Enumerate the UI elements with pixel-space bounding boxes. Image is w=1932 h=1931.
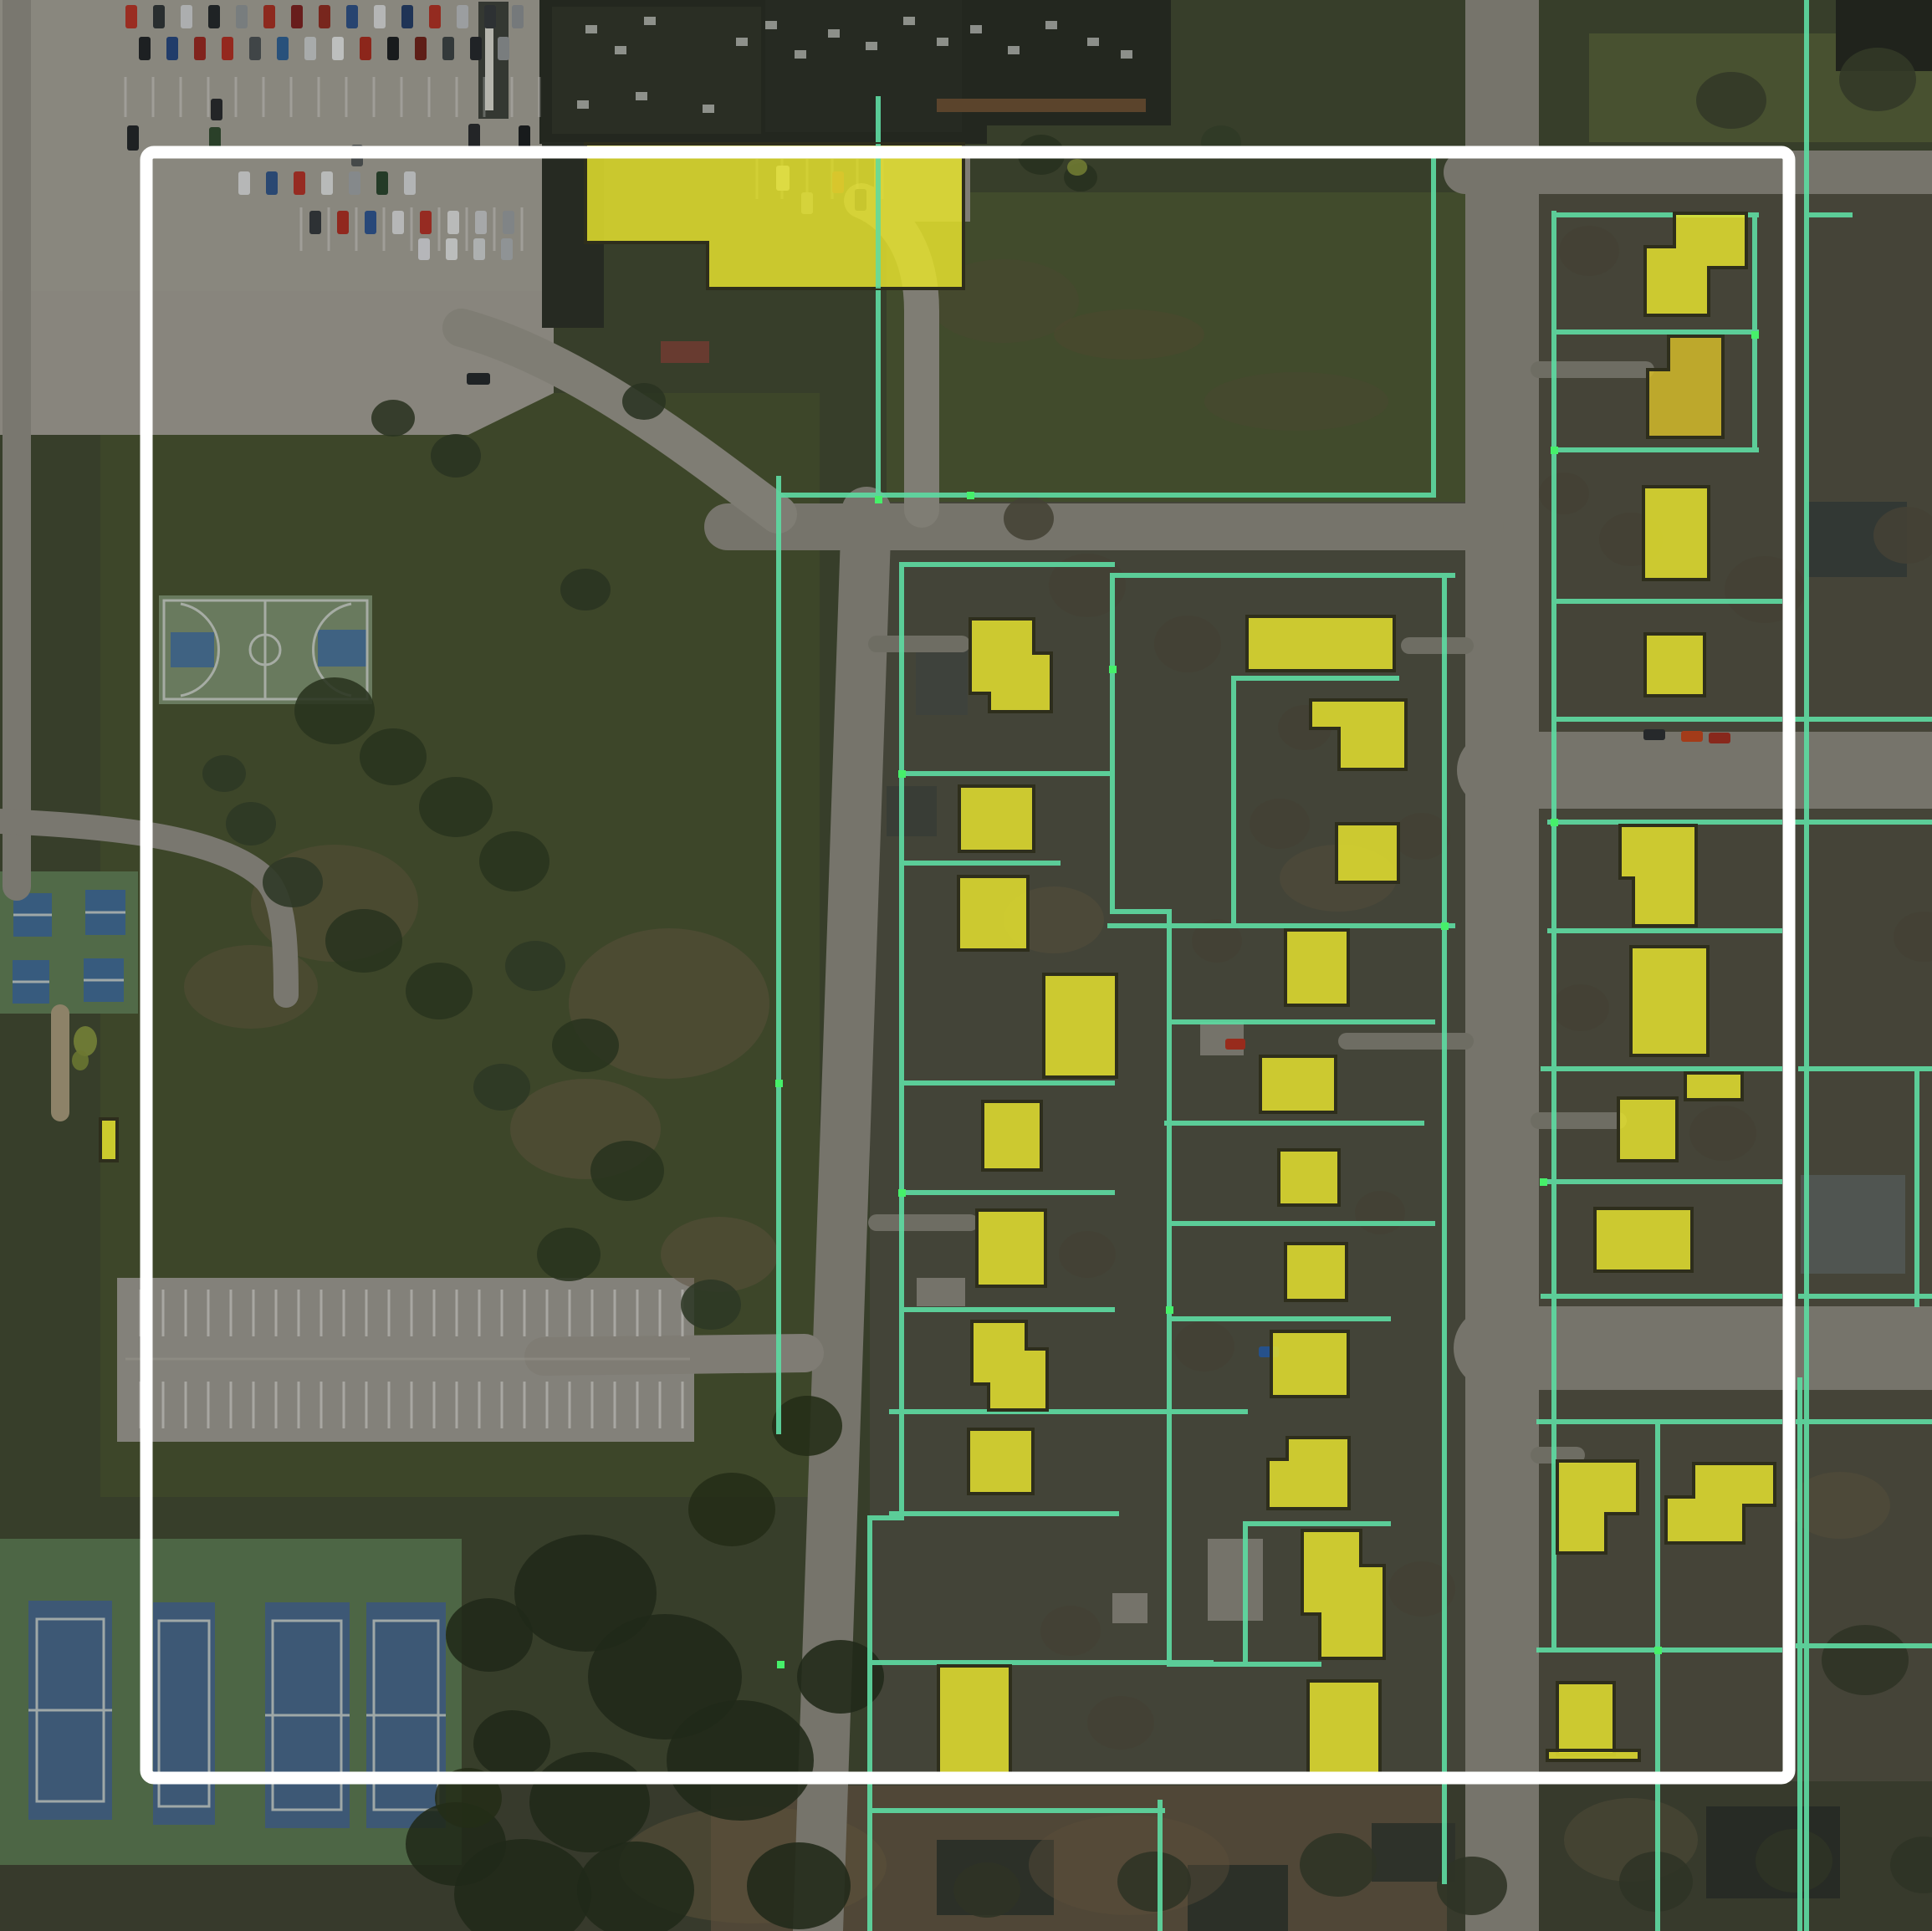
- house-right-7[interactable]: [1685, 1073, 1742, 1100]
- house-center-9[interactable]: [938, 1666, 1010, 1775]
- house-right-9[interactable]: [1595, 1208, 1692, 1271]
- house-mid-5[interactable]: [1260, 1056, 1336, 1112]
- parcel-vertex-dot: [777, 1661, 785, 1668]
- house-center-6[interactable]: [977, 1210, 1045, 1286]
- parcel-vertex-dot: [898, 770, 906, 778]
- parcel-vertex-dot: [875, 496, 882, 503]
- house-center-3[interactable]: [958, 876, 1028, 950]
- parcel-vertex-dot: [1540, 1178, 1547, 1186]
- house-mid-1[interactable]: [1247, 616, 1394, 671]
- house-right-12[interactable]: [1557, 1683, 1614, 1755]
- parcel-vertex-dot: [1751, 331, 1759, 339]
- house-mid-3[interactable]: [1337, 824, 1398, 882]
- house-right-4[interactable]: [1645, 634, 1705, 696]
- house-right-6[interactable]: [1631, 947, 1708, 1055]
- house-mid-4[interactable]: [1285, 930, 1348, 1005]
- parcel-vertex-dot: [1441, 922, 1449, 930]
- aerial-annotation-canvas: [0, 0, 1932, 1931]
- parcel-vertex-dot: [1654, 1647, 1662, 1654]
- house-mid-8[interactable]: [1271, 1331, 1348, 1397]
- house-center-8[interactable]: [969, 1429, 1033, 1494]
- house-right-3[interactable]: [1643, 487, 1709, 580]
- annotation-sliver-left[interactable]: [100, 1119, 117, 1161]
- map-scene: [0, 0, 1932, 1931]
- house-center-5[interactable]: [983, 1101, 1041, 1170]
- house-right-8[interactable]: [1618, 1098, 1677, 1161]
- house-mid-6[interactable]: [1279, 1150, 1339, 1205]
- parcel-vertex-dot: [1109, 666, 1117, 673]
- house-right-12-strip[interactable]: [1547, 1750, 1639, 1760]
- house-mid-7[interactable]: [1285, 1244, 1347, 1300]
- house-mid-11[interactable]: [1308, 1681, 1380, 1775]
- house-center-2[interactable]: [959, 786, 1034, 851]
- parcel-vertex-dot: [1551, 819, 1558, 826]
- parcel-vertex-dot: [898, 1189, 906, 1197]
- house-center-4[interactable]: [1044, 974, 1117, 1077]
- parcel-vertex-dot: [967, 492, 974, 499]
- parcel-vertex-dot: [1166, 1306, 1173, 1314]
- parcel-vertex-dot: [775, 1080, 783, 1087]
- parcel-vertex-dot: [1551, 447, 1558, 454]
